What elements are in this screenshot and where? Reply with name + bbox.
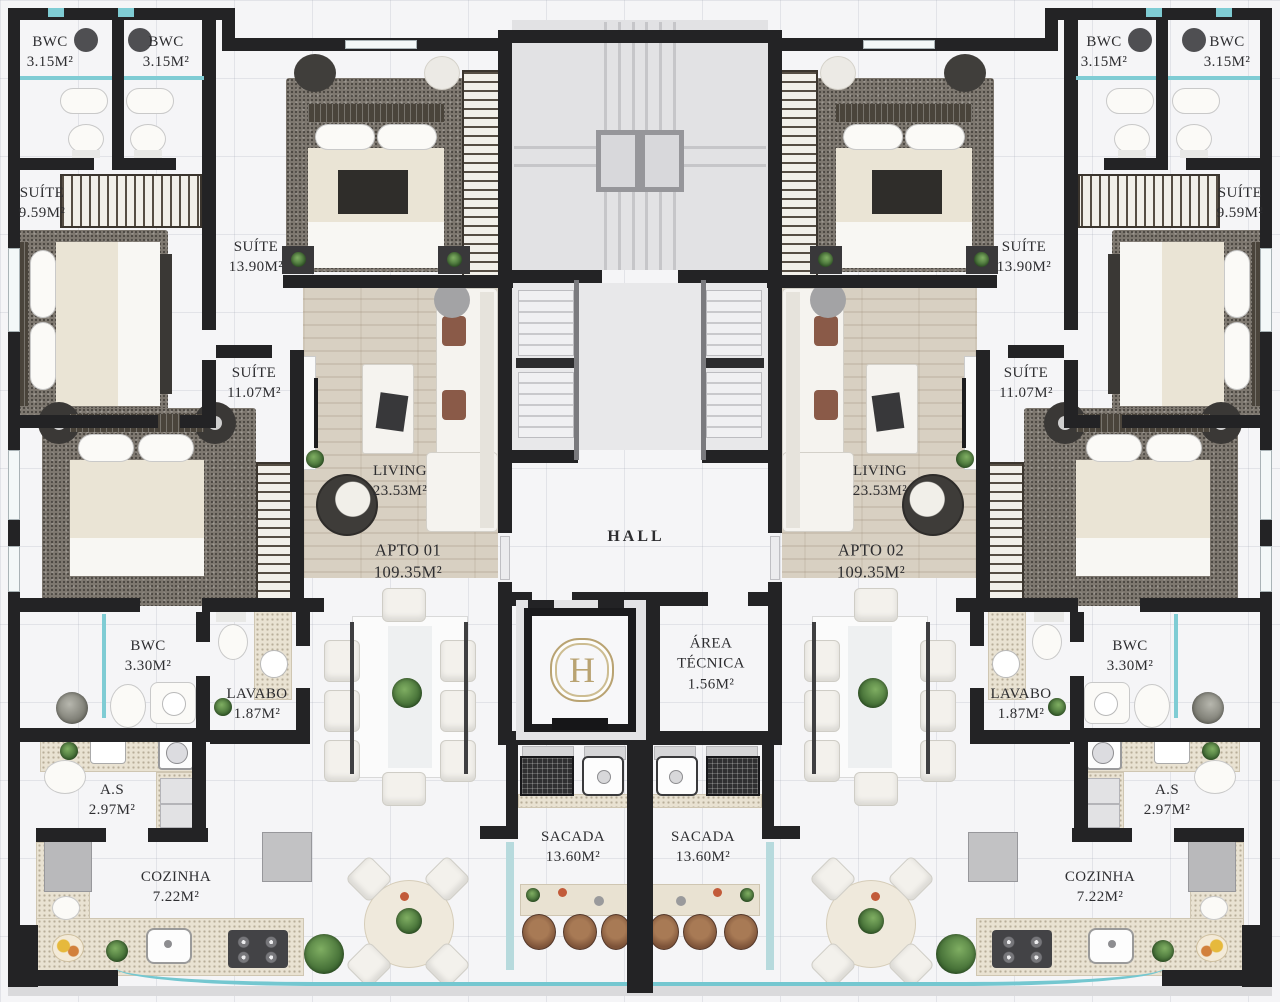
room-area: 1.87M² <box>990 704 1051 724</box>
wall <box>20 728 206 742</box>
wall <box>8 598 140 612</box>
wall <box>598 600 624 608</box>
room-area: 3.30M² <box>1107 656 1154 676</box>
room-area: 11.07M² <box>227 383 281 403</box>
plant <box>392 678 422 708</box>
decor-dot <box>558 888 567 897</box>
floor-plant <box>1192 692 1224 724</box>
room-label-bwc: BWC3.15M² <box>143 32 190 73</box>
wall <box>1070 612 1084 642</box>
bed-bench <box>1108 254 1120 394</box>
wall <box>1174 828 1244 842</box>
dining-chair <box>854 588 898 622</box>
toilet-tank <box>72 150 100 158</box>
plant <box>974 252 989 267</box>
decor-dot <box>400 892 409 901</box>
bed-foot <box>1120 242 1162 406</box>
appliance <box>160 778 194 804</box>
bed-foot <box>70 538 204 576</box>
bed-foot <box>308 222 444 268</box>
faucet <box>164 940 172 948</box>
toilet <box>218 624 248 660</box>
room-name: BWC <box>1204 32 1251 52</box>
room-name: SUÍTE <box>999 363 1053 383</box>
room-name: COZINHA <box>1065 867 1135 887</box>
plant <box>740 888 754 902</box>
sink-basin <box>260 650 288 678</box>
wall <box>768 282 782 533</box>
wall <box>296 612 310 646</box>
wall <box>30 970 118 986</box>
dining-table-edge <box>812 622 816 774</box>
pouf <box>424 56 460 90</box>
toilet-tank <box>1118 150 1146 158</box>
shower-head <box>1128 28 1152 52</box>
room-label-lavabo: LAVABO1.87M² <box>990 684 1051 725</box>
window <box>118 8 134 17</box>
sofa-pillow <box>814 316 838 346</box>
room-area: 13.90M² <box>229 257 283 277</box>
wall <box>970 612 984 646</box>
coffee-table-tray <box>376 392 409 432</box>
room-label-suite: SUÍTE11.07M² <box>227 363 281 404</box>
plant <box>858 678 888 708</box>
bed-foot <box>1076 538 1210 576</box>
plant <box>306 450 324 468</box>
room-name: LAVABO <box>226 684 287 704</box>
room-area: 23.53M² <box>853 481 907 501</box>
kitchen-appliance <box>1200 896 1228 920</box>
room-label-living: LIVING23.53M² <box>373 461 427 502</box>
double-bed <box>70 460 204 538</box>
room-area: 7.22M² <box>1065 887 1135 907</box>
sink-basin <box>162 692 186 716</box>
wall <box>283 275 513 288</box>
wall <box>180 415 216 428</box>
apartment-label: APTO 02109.35M² <box>837 540 905 585</box>
appliance <box>1086 804 1120 828</box>
bed-pillow <box>30 322 56 390</box>
wall <box>678 270 768 283</box>
decor-dot <box>594 896 604 906</box>
wall <box>1122 415 1272 428</box>
wall <box>498 582 512 742</box>
bed-pillow <box>1086 434 1142 462</box>
vanity-counter <box>60 88 108 114</box>
sink-drain <box>597 770 611 784</box>
refrigerator <box>262 832 312 882</box>
room-label-lavabo: LAVABO1.87M² <box>226 684 287 725</box>
bed-pillow <box>78 434 134 462</box>
sliding-glass-door <box>506 842 514 970</box>
refrigerator <box>968 832 1018 882</box>
wall <box>1140 598 1272 612</box>
wall <box>640 30 782 43</box>
balcony-chair <box>563 914 597 950</box>
sofa-back <box>786 292 800 528</box>
apartment-area: 109.35M² <box>837 562 905 584</box>
bed-pillow <box>843 124 903 150</box>
wardrobe <box>60 174 202 228</box>
elevator-door <box>552 718 608 730</box>
window <box>48 8 64 17</box>
area-tecnica-label: ÁREATÉCNICA1.56M² <box>677 634 745 695</box>
rattan-chair <box>316 474 378 536</box>
wall <box>956 598 1078 612</box>
double-bed <box>1076 460 1210 538</box>
vanity-counter <box>1172 88 1220 114</box>
dining-table-edge <box>464 622 468 774</box>
wall <box>498 30 512 282</box>
bed-headboard <box>836 104 972 122</box>
wall <box>1186 158 1260 170</box>
wall <box>36 828 106 842</box>
wall <box>1260 592 1272 928</box>
bed-throw <box>872 170 942 214</box>
wall <box>1072 828 1132 842</box>
room-label-as: A.S2.97M² <box>89 780 136 821</box>
wall <box>1260 520 1272 546</box>
room-name: SACADA <box>671 827 735 847</box>
wall <box>702 450 768 463</box>
wall <box>762 826 800 839</box>
toilet <box>110 684 146 728</box>
room-label-suite: SUÍTE9.59M² <box>19 183 66 224</box>
dining-table-edge <box>350 622 354 774</box>
room-label-sacada: SACADA13.60M² <box>671 827 735 868</box>
room-name: A.S <box>1144 780 1191 800</box>
washer-door <box>1092 742 1114 764</box>
wall <box>8 332 20 450</box>
room-name: A.S <box>89 780 136 800</box>
window <box>345 40 417 49</box>
dining-chair <box>382 588 426 622</box>
bed-pillow <box>30 250 56 318</box>
shaft-duct <box>596 130 640 192</box>
balcony-counter <box>652 794 762 808</box>
wall <box>1064 170 1078 330</box>
shaft-duct <box>640 130 684 192</box>
room-area: 9.59M² <box>19 203 66 223</box>
dining-chair <box>804 740 840 782</box>
wall <box>640 731 782 745</box>
entry-door <box>770 536 780 580</box>
room-area: 9.59M² <box>1217 203 1264 223</box>
balcony-chair <box>649 914 679 950</box>
wall <box>976 350 990 598</box>
glass-railing <box>116 962 640 986</box>
shower-glass <box>1174 614 1178 718</box>
room-name: LIVING <box>373 461 427 481</box>
room-name: BWC <box>1081 32 1128 52</box>
stair-wall <box>516 358 578 368</box>
wall <box>528 600 554 608</box>
wall <box>762 742 774 838</box>
slab-edge <box>640 986 1272 996</box>
tv <box>962 378 966 448</box>
toilet-tank <box>134 150 162 158</box>
room-name: SUÍTE <box>227 363 281 383</box>
wall <box>192 742 206 840</box>
wall <box>646 598 660 745</box>
entry-door <box>500 536 510 580</box>
bed-pillow <box>1224 322 1250 390</box>
bed-pillow <box>138 434 194 462</box>
plant <box>526 888 540 902</box>
wall <box>210 730 310 744</box>
window <box>863 40 935 49</box>
floor-plant <box>56 692 88 724</box>
shower-glass <box>1168 76 1260 80</box>
room-name: ÁREA <box>677 634 745 654</box>
room-area: 2.97M² <box>1144 800 1191 820</box>
room-label-suite: SUÍTE13.90M² <box>229 237 283 278</box>
bed-pillow <box>1146 434 1202 462</box>
wall <box>8 415 158 428</box>
room-label-bwc: BWC3.15M² <box>1081 32 1128 73</box>
shower-glass <box>124 76 204 80</box>
bed-pillow <box>377 124 437 150</box>
plant <box>956 450 974 468</box>
window <box>1260 546 1272 592</box>
bed-throw <box>338 170 408 214</box>
dining-chair <box>440 690 476 732</box>
room-name: BWC <box>143 32 190 52</box>
wall <box>768 30 782 282</box>
window <box>8 450 20 520</box>
wall <box>290 350 304 598</box>
stair-divider <box>701 280 706 460</box>
vanity-counter <box>1106 88 1154 114</box>
shower-glass <box>20 76 112 80</box>
room-name: SUÍTE <box>229 237 283 257</box>
hall-text: HALL <box>607 526 664 548</box>
wall <box>1064 8 1078 170</box>
wall <box>498 30 640 43</box>
balcony-counter <box>518 794 628 808</box>
room-area: 2.97M² <box>89 800 136 820</box>
shower-head <box>74 28 98 52</box>
slab-edge <box>8 986 640 996</box>
decor-dot <box>713 888 722 897</box>
room-area: 13.60M² <box>541 847 605 867</box>
room-area: 1.87M² <box>226 704 287 724</box>
plant <box>396 908 422 934</box>
room-name: SACADA <box>541 827 605 847</box>
plant <box>447 252 462 267</box>
grill <box>520 756 574 796</box>
decor-dot <box>676 896 686 906</box>
wall <box>970 730 1070 744</box>
appliance <box>160 804 194 828</box>
room-name: SUÍTE <box>997 237 1051 257</box>
stair-divider <box>574 280 579 460</box>
balcony-divider-wall <box>627 745 653 993</box>
room-label-as: A.S2.97M² <box>1144 780 1191 821</box>
balcony-chair <box>724 914 758 950</box>
room-label-bwc: BWC3.15M² <box>27 32 74 73</box>
wash-basin <box>44 760 86 794</box>
wall <box>1064 360 1078 418</box>
shower-glass <box>1076 76 1156 80</box>
floor-plan: H BWC3.15M² BWC3.15M² SUÍTE9.59M² SUÍTE1… <box>0 0 1280 1002</box>
room-area: 7.22M² <box>141 887 211 907</box>
room-label-living: LIVING23.53M² <box>853 461 907 502</box>
wall <box>506 742 518 838</box>
wall <box>20 158 94 170</box>
sofa-pillow <box>814 390 838 420</box>
room-area: 3.15M² <box>143 52 190 72</box>
room-area: 11.07M² <box>999 383 1053 403</box>
plant <box>818 252 833 267</box>
rattan-chair <box>902 474 964 536</box>
appliance <box>1086 778 1120 804</box>
room-label-bwc: BWC3.30M² <box>125 636 172 677</box>
bed-pillow <box>1224 250 1250 318</box>
tv <box>314 378 318 448</box>
balcony-chair <box>683 914 717 950</box>
apartment-name: APTO 01 <box>374 540 442 562</box>
monogram-letter: H <box>569 649 595 691</box>
room-name: LAVABO <box>990 684 1051 704</box>
sofa-pillow <box>442 390 466 420</box>
wall <box>1074 728 1260 742</box>
room-area: 13.60M² <box>671 847 735 867</box>
wall <box>148 828 208 842</box>
wall <box>8 520 20 546</box>
hall-label: HALL <box>607 526 664 548</box>
toilet-tank <box>216 612 246 622</box>
stair-flight <box>706 290 762 356</box>
sofa-back <box>480 292 494 528</box>
dining-chair <box>324 690 360 732</box>
wall <box>8 592 20 928</box>
room-area: 1.56M² <box>677 674 745 694</box>
wall <box>1008 345 1064 358</box>
wall <box>498 282 512 533</box>
double-bed <box>1162 242 1224 406</box>
room-name: COZINHA <box>141 867 211 887</box>
toilet-tank <box>1034 612 1064 622</box>
wardrobe <box>1078 174 1220 228</box>
sink-basin <box>992 650 1020 678</box>
double-bed <box>56 242 118 406</box>
room-area: 23.53M² <box>373 481 427 501</box>
room-label-cozinha: COZINHA7.22M² <box>1065 867 1135 908</box>
room-label-suite: SUÍTE13.90M² <box>997 237 1051 278</box>
room-name: BWC <box>125 636 172 656</box>
sink-basin <box>1094 692 1118 716</box>
wall <box>480 826 518 839</box>
bed-foot <box>836 222 972 268</box>
plant <box>106 940 128 962</box>
room-name: TÉCNICA <box>677 654 745 674</box>
room-label-cozinha: COZINHA7.22M² <box>141 867 211 908</box>
room-name: BWC <box>1107 636 1154 656</box>
room-label-suite: SUÍTE9.59M² <box>1217 183 1264 224</box>
wall <box>767 275 997 288</box>
stair-flight <box>518 372 574 438</box>
dining-chair <box>324 740 360 782</box>
shower-head <box>1182 28 1206 52</box>
room-area: 13.90M² <box>997 257 1051 277</box>
dining-chair <box>804 690 840 732</box>
dining-chair <box>440 740 476 782</box>
window <box>1260 248 1272 332</box>
dining-chair <box>382 772 426 806</box>
fruit-bowl <box>52 934 84 962</box>
wash-basin <box>1194 760 1236 794</box>
bed-foot <box>118 242 160 406</box>
wall <box>202 170 216 330</box>
shower-glass <box>102 614 106 718</box>
glass-railing <box>640 962 1164 986</box>
room-label-suite: SUÍTE11.07M² <box>999 363 1053 404</box>
wall <box>1260 332 1272 450</box>
room-area: 3.30M² <box>125 656 172 676</box>
bed-headboard <box>308 104 444 122</box>
kitchen-cabinet <box>1188 840 1236 892</box>
wall <box>202 598 324 612</box>
room-name: LIVING <box>853 461 907 481</box>
window <box>1216 8 1232 17</box>
bed-pillow <box>905 124 965 150</box>
plant <box>1202 742 1220 760</box>
toilet <box>1032 624 1062 660</box>
bed-bench <box>160 254 172 394</box>
dining-chair <box>324 640 360 682</box>
window <box>1146 8 1162 17</box>
faucet <box>1108 940 1116 948</box>
plant <box>1152 940 1174 962</box>
room-name: BWC <box>27 32 74 52</box>
vanity-counter <box>126 88 174 114</box>
plant <box>291 252 306 267</box>
kitchen-cabinet <box>44 840 92 892</box>
wall <box>216 345 272 358</box>
dining-chair <box>440 640 476 682</box>
dining-table-edge <box>926 622 930 774</box>
window <box>8 248 20 332</box>
plant <box>60 742 78 760</box>
decor-dot <box>871 892 880 901</box>
stair-flight <box>706 372 762 438</box>
plant <box>858 908 884 934</box>
stair-wall <box>702 358 764 368</box>
stair-flight <box>518 290 574 356</box>
dining-chair <box>804 640 840 682</box>
dining-chair <box>854 772 898 806</box>
room-area: 3.15M² <box>27 52 74 72</box>
room-name: SUÍTE <box>19 183 66 203</box>
apartment-name: APTO 02 <box>837 540 905 562</box>
wall <box>202 8 216 170</box>
apartment-area: 109.35M² <box>374 562 442 584</box>
armchair <box>944 54 986 92</box>
sliding-glass-door <box>766 842 774 970</box>
toilet-tank <box>1180 150 1208 158</box>
coffee-table-tray <box>872 392 905 432</box>
sofa-pillow <box>442 316 466 346</box>
wall <box>1064 415 1100 428</box>
bed-pillow <box>315 124 375 150</box>
room-label-bwc: BWC3.15M² <box>1204 32 1251 73</box>
sink-drain <box>669 770 683 784</box>
wall <box>1104 158 1168 170</box>
fruit-bowl <box>1196 934 1228 962</box>
room-area: 3.15M² <box>1204 52 1251 72</box>
toilet <box>1134 684 1170 728</box>
